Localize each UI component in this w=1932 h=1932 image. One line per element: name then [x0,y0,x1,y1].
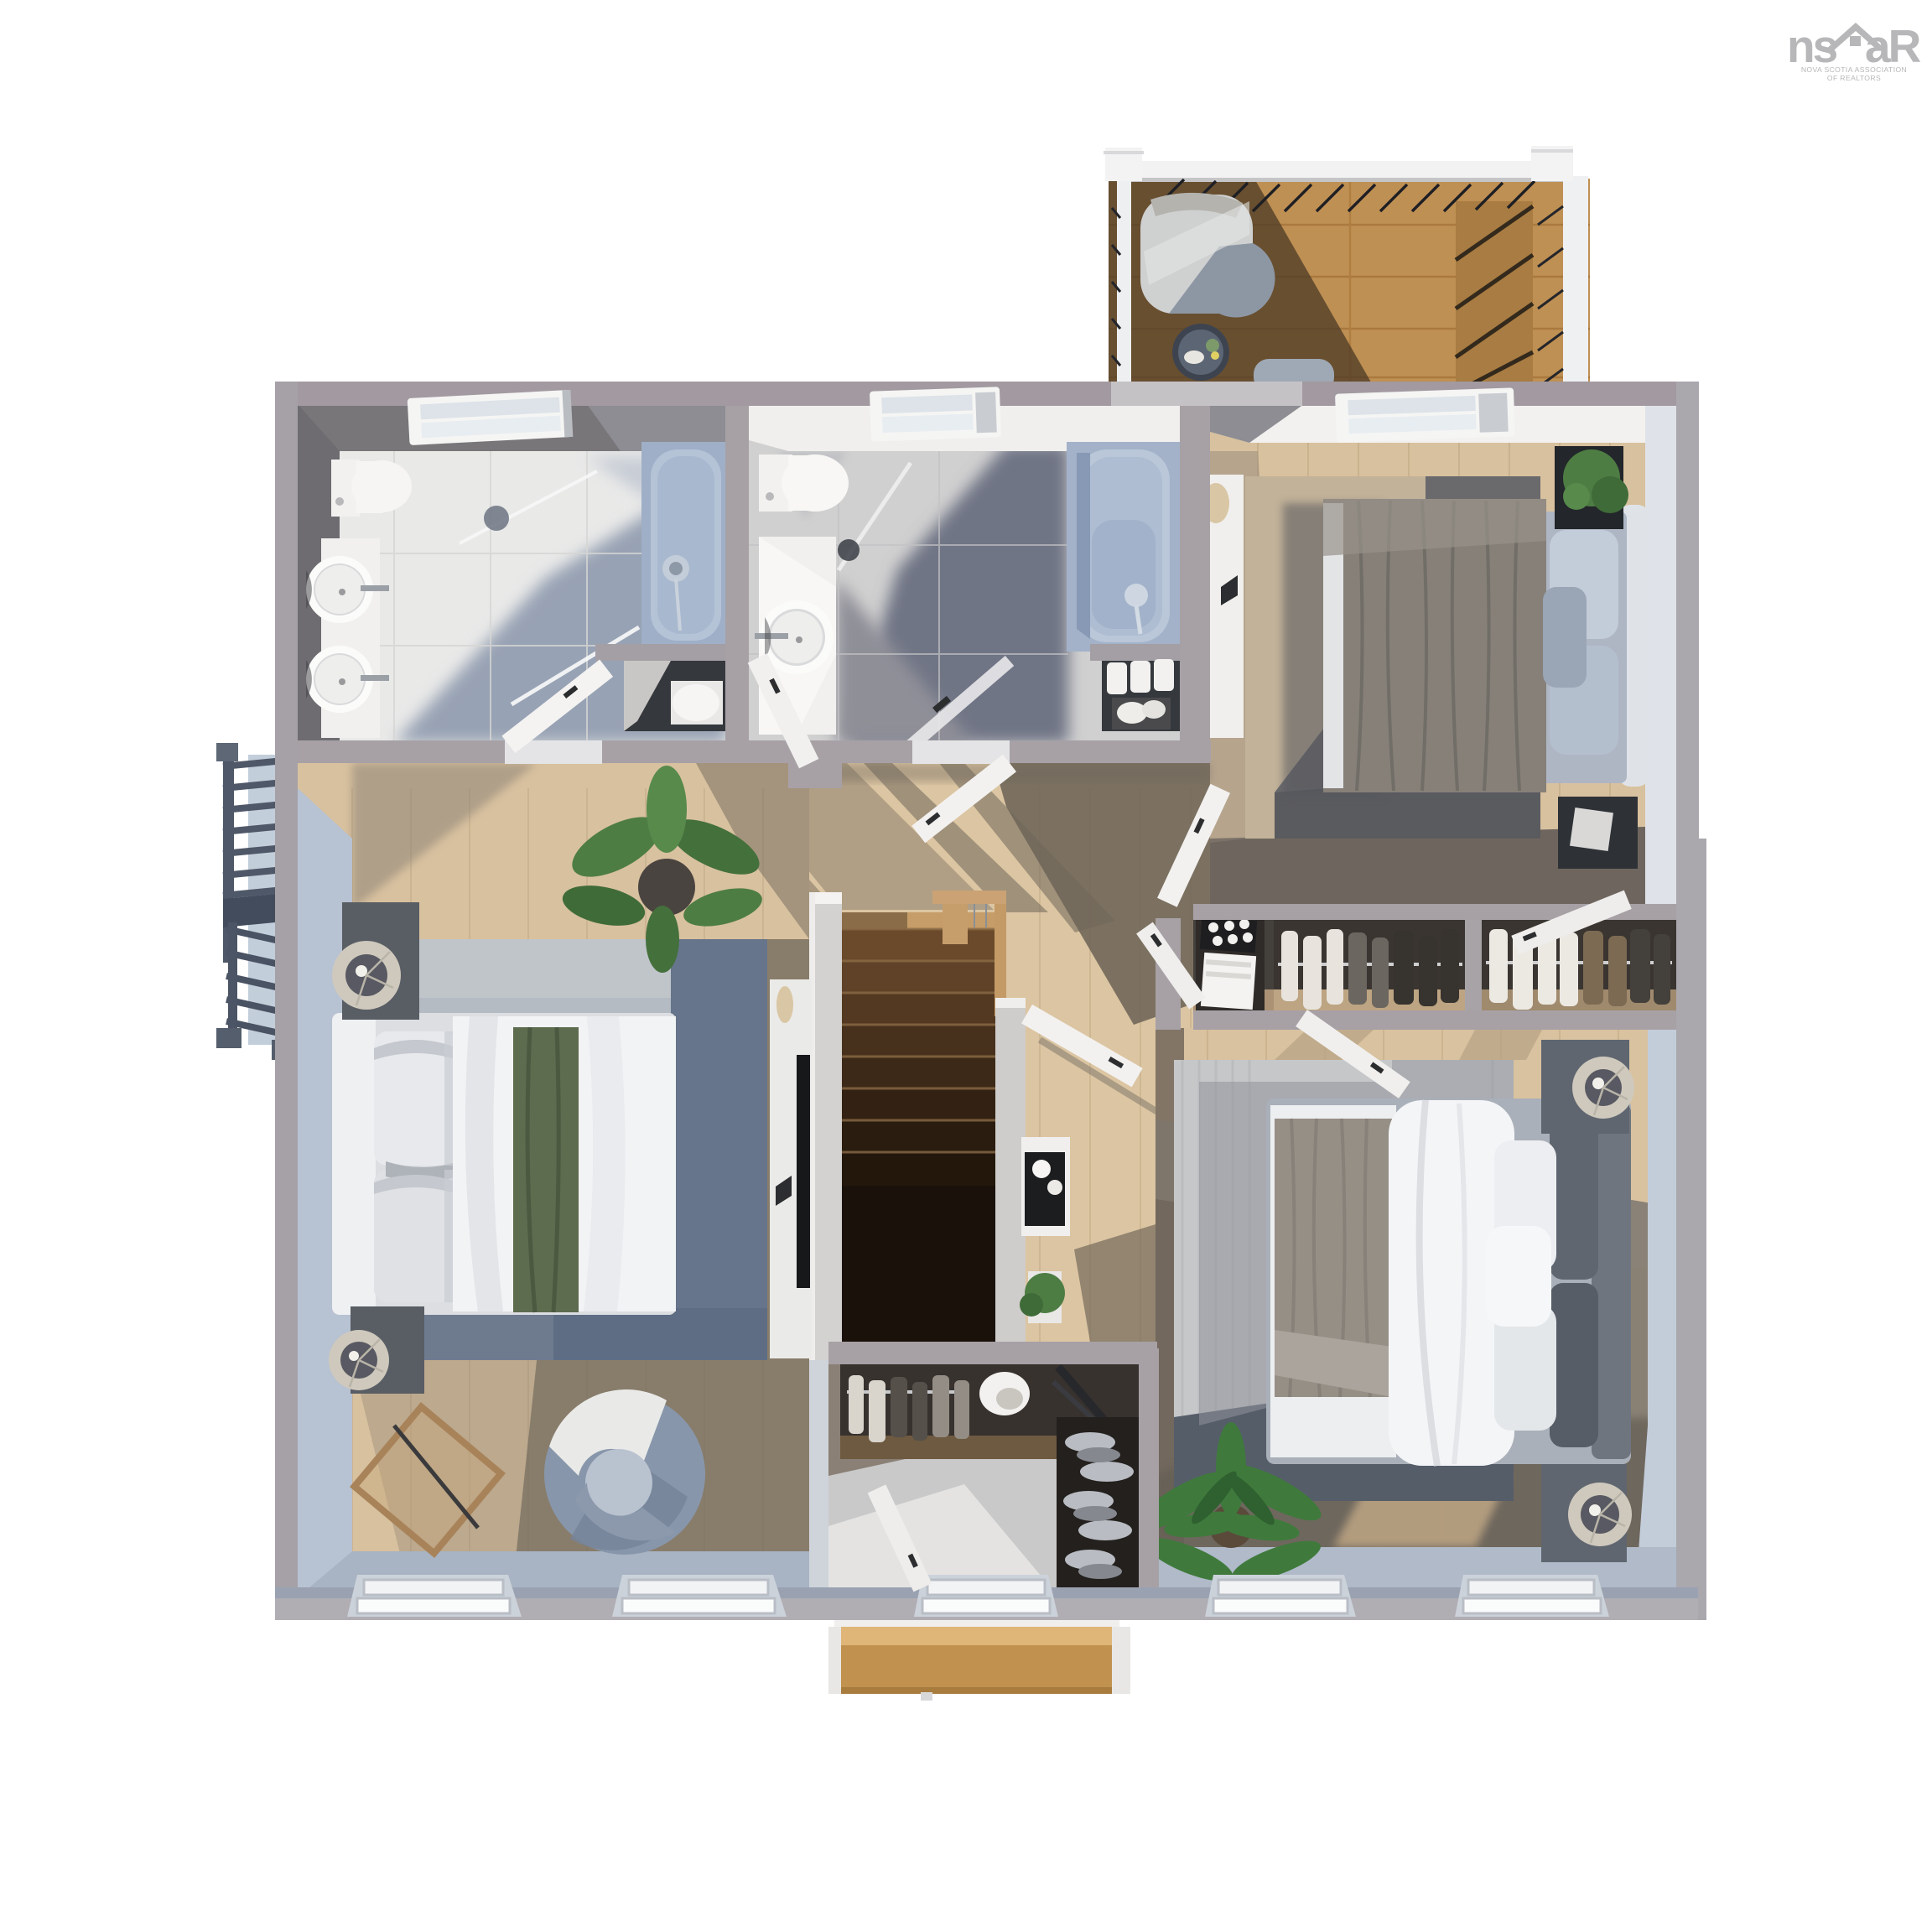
svg-text:OF REALTORS: OF REALTORS [1827,74,1881,82]
svg-text:NOVA SCOTIA ASSOCIATION: NOVA SCOTIA ASSOCIATION [1801,65,1907,74]
